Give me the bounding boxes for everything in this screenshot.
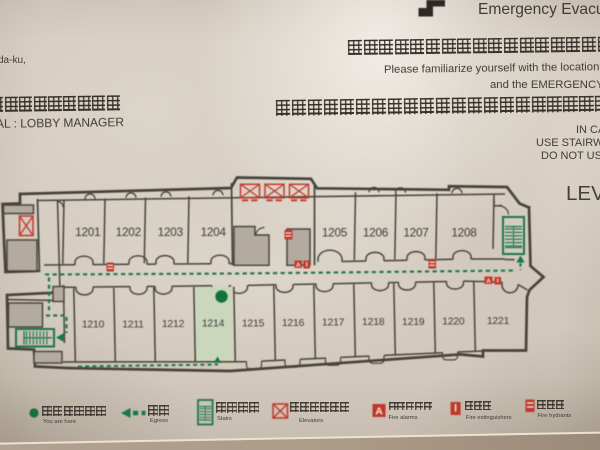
svg-text:1216: 1216 <box>282 318 305 329</box>
svg-text:1220: 1220 <box>442 317 465 328</box>
svg-text:1207: 1207 <box>403 226 428 240</box>
svg-text:A: A <box>375 406 383 418</box>
svg-text:1206: 1206 <box>363 225 389 239</box>
svg-text:1205: 1205 <box>322 225 348 239</box>
svg-text:1215: 1215 <box>242 318 265 329</box>
svg-text:1218: 1218 <box>362 317 385 328</box>
svg-text:1214: 1214 <box>202 319 225 330</box>
svg-text:1219: 1219 <box>402 317 425 328</box>
svg-text:1221: 1221 <box>487 316 510 327</box>
svg-text:1217: 1217 <box>322 318 345 329</box>
svg-text:1208: 1208 <box>451 226 477 240</box>
svg-text:1204: 1204 <box>201 225 227 239</box>
svg-text:1211: 1211 <box>122 319 144 330</box>
svg-text:A: A <box>296 262 301 269</box>
svg-text:1210: 1210 <box>82 320 105 331</box>
svg-text:1203: 1203 <box>158 225 184 239</box>
svg-text:1212: 1212 <box>162 319 185 330</box>
svg-text:1202: 1202 <box>116 225 141 239</box>
svg-text:1201: 1201 <box>75 225 100 239</box>
svg-text:A: A <box>486 278 491 285</box>
